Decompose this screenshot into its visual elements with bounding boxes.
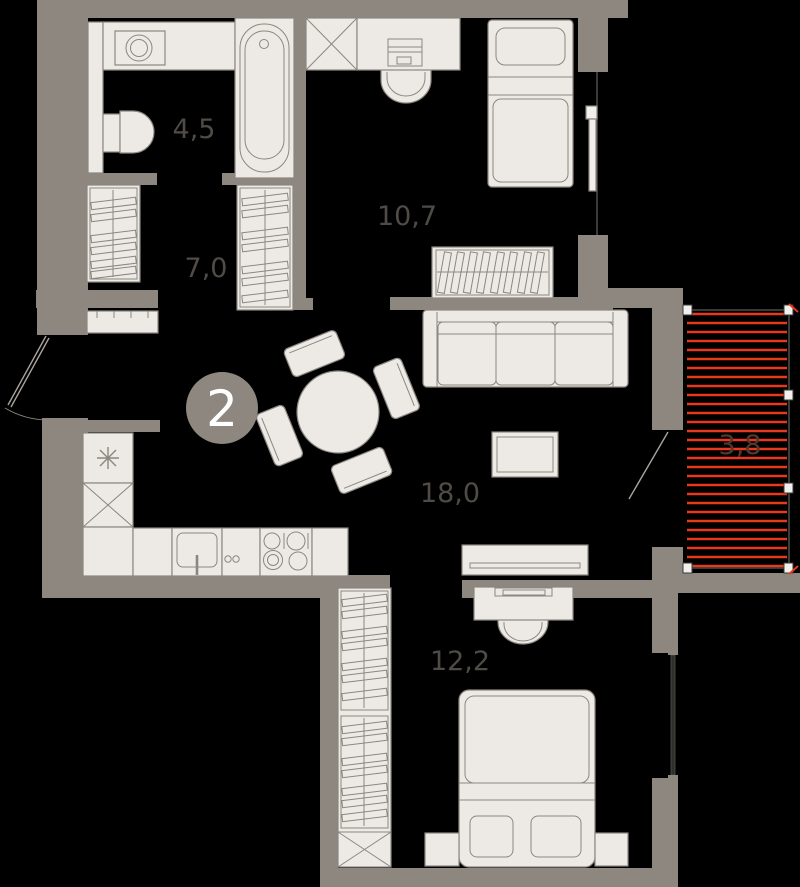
wall-bath-room107-divider: [293, 18, 306, 310]
wall-living-room107-divider: [390, 297, 613, 310]
wall-living-east-upper: [652, 288, 683, 430]
room-label-living: 18,0: [420, 478, 480, 509]
kitchen-cabinet-x: [83, 483, 133, 527]
window-jamb-top: [668, 649, 678, 655]
wardrobe-hall-right: [237, 185, 293, 310]
nightstand-left: [425, 833, 459, 866]
wall-left-upper: [37, 0, 88, 335]
bedroom-master: [338, 587, 628, 867]
window-bedroom-small: [580, 72, 606, 235]
wall-bedroom-east-lower: [652, 778, 678, 868]
wall-bath-south-left: [82, 173, 157, 185]
wall-hall-band: [36, 290, 158, 308]
balcony-corner-marks: [789, 304, 798, 574]
washing-machine: [115, 31, 165, 65]
room-label-balcony: 3,8: [719, 430, 762, 461]
window-jamb-bottom: [668, 775, 678, 781]
dining-set: [236, 310, 439, 513]
unit-badge: 2: [186, 372, 258, 444]
entry-bench: [87, 311, 158, 333]
bathroom-side-ledge: [88, 22, 103, 173]
window-handle: [586, 106, 597, 119]
room-label-hallway: 7,0: [185, 253, 228, 284]
coffee-table: [492, 432, 558, 477]
floor-plan: 4,5 7,0 10,7 18,0 12,2 3,8 2: [0, 0, 800, 887]
kitchen-cabinet-small: [222, 528, 260, 576]
entry-door-swing-arc: [5, 408, 47, 420]
wall-window-upper: [578, 18, 608, 72]
room-label-bedroom-master: 12,2: [430, 646, 490, 677]
floor-plan-drawing: 4,5 7,0 10,7 18,0 12,2 3,8 2: [0, 0, 800, 887]
desk-chair-107: [381, 66, 431, 103]
wardrobe-hall-left: [87, 185, 140, 282]
toilet: [103, 111, 154, 153]
bathroom: [88, 18, 294, 178]
bed-double: [459, 690, 595, 867]
room-label-bathroom: 4,5: [173, 114, 216, 145]
wall-entry-nook: [80, 420, 160, 432]
wall-bedroom-west: [320, 580, 338, 887]
wardrobe-master: [338, 588, 391, 867]
wall-bottom: [320, 868, 678, 887]
wall-window-lower: [578, 235, 608, 298]
balcony-door-leaf: [629, 432, 668, 499]
wall-top: [37, 0, 628, 18]
entry-door-leaf-2: [11, 338, 49, 407]
wall-foot: [293, 298, 313, 310]
room-label-bedroom-small: 10,7: [377, 201, 437, 232]
entry-door-leaf: [8, 336, 46, 405]
window-bedroom-master: [668, 649, 678, 781]
bedroom-small: [306, 18, 573, 298]
kitchen-cabinet-corner: [83, 527, 133, 576]
window-casement: [589, 119, 596, 191]
fridge: [83, 433, 133, 483]
wardrobe-107: [432, 247, 553, 298]
cabinet-x-107: [306, 18, 357, 70]
unit-badge-number: 2: [206, 380, 238, 438]
tv-stand: [462, 545, 588, 575]
kitchen-sink-unit: [172, 528, 222, 576]
nightstand-right: [595, 833, 628, 866]
bathtub: [235, 18, 294, 178]
desk-master: [474, 587, 573, 620]
sofa: [423, 310, 628, 387]
window-glazing: [671, 655, 675, 775]
kitchen-cabinet: [133, 528, 172, 576]
stove: [260, 528, 312, 576]
desk-107: [357, 18, 460, 70]
wall-left-lower: [42, 418, 88, 598]
kitchen-cabinet-end: [312, 528, 348, 576]
wall-top-stub: [608, 0, 628, 18]
bed-single: [488, 20, 573, 187]
entry-door: [5, 336, 49, 420]
wall-bedroom-east-upper: [652, 593, 678, 653]
kitchen: [83, 433, 348, 576]
wall-living-east-lower: [652, 547, 683, 593]
